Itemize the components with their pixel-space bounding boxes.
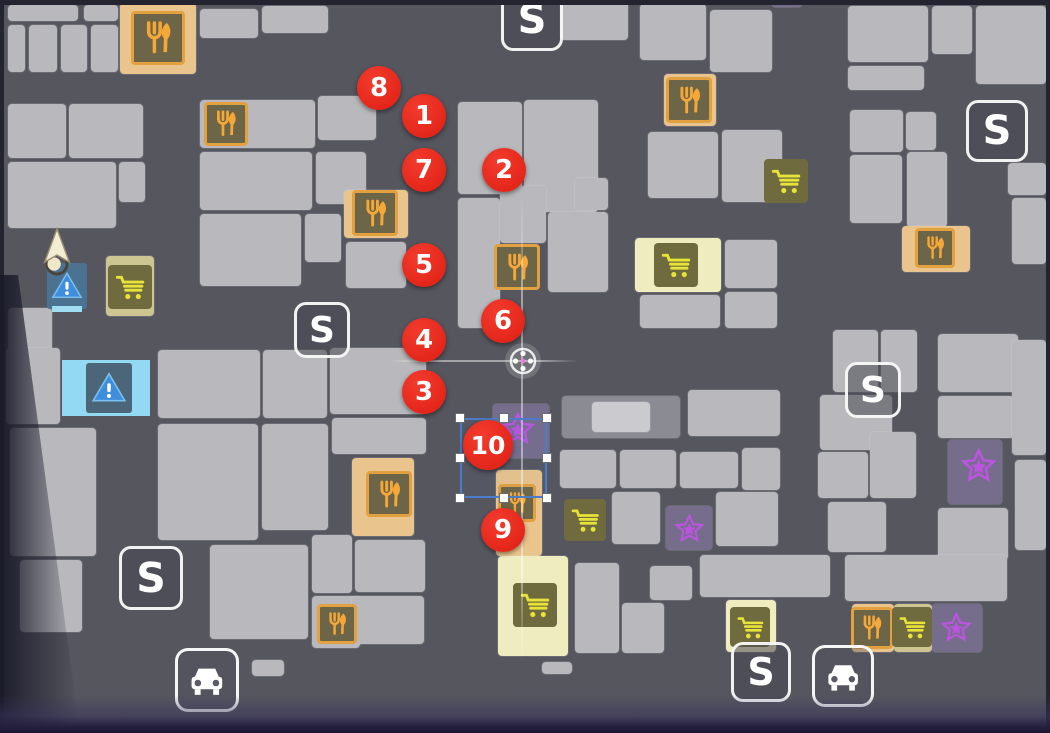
marker-number: 7 bbox=[415, 155, 433, 185]
map-marker-5[interactable]: 5 bbox=[402, 243, 446, 287]
building bbox=[716, 492, 778, 546]
building bbox=[312, 535, 352, 593]
shop-cart-icon bbox=[892, 607, 932, 647]
save-point-icon: S bbox=[294, 302, 350, 358]
player-position-icon bbox=[38, 226, 76, 278]
map-marker-1[interactable]: 1 bbox=[402, 94, 446, 138]
building bbox=[938, 396, 1014, 438]
building bbox=[938, 334, 1018, 392]
marker-number: 4 bbox=[415, 325, 433, 355]
restaurant-icon bbox=[204, 102, 248, 146]
save-point-icon: S bbox=[966, 100, 1028, 162]
building bbox=[640, 295, 720, 328]
building bbox=[119, 162, 145, 202]
marker-number: 5 bbox=[415, 250, 433, 280]
map-marker-8[interactable]: 8 bbox=[357, 66, 401, 110]
save-point-label: S bbox=[983, 108, 1012, 154]
restaurant-icon bbox=[494, 244, 540, 290]
building bbox=[69, 104, 143, 158]
shop-cart-icon bbox=[564, 499, 606, 541]
building bbox=[818, 452, 868, 498]
building bbox=[548, 212, 608, 292]
building bbox=[620, 450, 676, 488]
building bbox=[1012, 340, 1046, 455]
building bbox=[575, 563, 619, 653]
selection-handle-s[interactable] bbox=[499, 493, 509, 503]
building bbox=[742, 448, 780, 490]
building bbox=[850, 110, 903, 152]
building bbox=[575, 178, 608, 210]
building bbox=[262, 424, 328, 530]
building bbox=[907, 152, 947, 227]
building bbox=[938, 508, 1008, 560]
building bbox=[346, 242, 406, 288]
building bbox=[200, 152, 312, 210]
selection-handle-sw[interactable] bbox=[455, 493, 465, 503]
building bbox=[8, 104, 66, 158]
city-map[interactable]: SSSSSS 12345678910 bbox=[0, 0, 1050, 733]
building bbox=[355, 540, 425, 592]
marker-number: 9 bbox=[494, 515, 512, 545]
selection-handle-se[interactable] bbox=[542, 493, 552, 503]
building bbox=[1012, 198, 1046, 264]
restaurant-icon bbox=[131, 11, 185, 65]
warning-icon-large bbox=[62, 360, 150, 416]
map-marker-9[interactable]: 9 bbox=[481, 508, 525, 552]
save-point-icon: S bbox=[845, 362, 901, 418]
building bbox=[848, 66, 924, 90]
warning-inner-square bbox=[86, 363, 132, 413]
building bbox=[252, 660, 284, 676]
save-point-icon: S bbox=[731, 642, 791, 702]
selection-handle-e[interactable] bbox=[542, 453, 552, 463]
target-reticle-icon bbox=[501, 339, 545, 383]
shop-cart-icon bbox=[730, 607, 770, 647]
restaurant-icon bbox=[366, 471, 412, 517]
restaurant-icon bbox=[352, 190, 398, 236]
building bbox=[61, 25, 87, 72]
building bbox=[612, 492, 660, 544]
building bbox=[700, 555, 830, 597]
building bbox=[850, 155, 902, 223]
building bbox=[640, 4, 706, 60]
selection-handle-nw[interactable] bbox=[455, 413, 465, 423]
map-marker-2[interactable]: 2 bbox=[482, 148, 526, 192]
building bbox=[10, 428, 96, 556]
marker-number: 3 bbox=[415, 377, 433, 407]
building bbox=[20, 560, 82, 632]
building bbox=[352, 596, 424, 644]
warning-underline bbox=[52, 306, 82, 312]
building bbox=[263, 350, 327, 418]
star-icon bbox=[955, 443, 1003, 491]
building bbox=[200, 9, 258, 38]
marker-number: 8 bbox=[370, 73, 388, 103]
shop-cart-icon bbox=[764, 159, 808, 203]
save-point-label: S bbox=[136, 554, 166, 602]
building bbox=[500, 186, 546, 243]
map-marker-4[interactable]: 4 bbox=[402, 318, 446, 362]
building bbox=[6, 348, 60, 424]
building bbox=[648, 132, 718, 198]
building bbox=[158, 350, 260, 418]
marker-number: 2 bbox=[495, 155, 513, 185]
building bbox=[560, 450, 616, 488]
save-point-icon: S bbox=[501, 0, 563, 51]
map-marker-6[interactable]: 6 bbox=[481, 299, 525, 343]
building bbox=[725, 292, 777, 328]
building bbox=[91, 25, 118, 72]
building bbox=[650, 566, 692, 600]
selection-handle-ne[interactable] bbox=[542, 413, 552, 423]
map-marker-3[interactable]: 3 bbox=[402, 370, 446, 414]
shop-cart-icon bbox=[108, 265, 152, 309]
building bbox=[8, 5, 78, 21]
save-point-label: S bbox=[860, 370, 886, 411]
marker-number: 6 bbox=[494, 306, 512, 336]
restaurant-icon bbox=[317, 604, 357, 644]
map-bottom-band bbox=[0, 695, 1050, 733]
building bbox=[845, 555, 1007, 601]
marker-number: 10 bbox=[471, 431, 506, 460]
building bbox=[828, 502, 886, 552]
building bbox=[906, 112, 936, 150]
building bbox=[932, 6, 972, 54]
save-point-label: S bbox=[747, 650, 774, 694]
building bbox=[976, 6, 1046, 84]
restaurant-icon bbox=[915, 228, 955, 268]
map-border-right bbox=[1046, 0, 1050, 733]
building bbox=[725, 240, 777, 288]
building bbox=[622, 603, 664, 653]
star-icon bbox=[669, 509, 709, 549]
taxi-icon bbox=[812, 645, 874, 707]
building bbox=[8, 25, 25, 72]
building bbox=[680, 452, 738, 488]
building bbox=[332, 418, 426, 454]
selection-handle-n[interactable] bbox=[499, 413, 509, 423]
shop-cart-icon bbox=[513, 583, 557, 627]
selection-handle-w[interactable] bbox=[455, 453, 465, 463]
building bbox=[210, 545, 308, 639]
save-point-label: S bbox=[518, 0, 547, 43]
save-point-label: S bbox=[309, 310, 335, 351]
taxi-icon bbox=[175, 648, 239, 712]
restaurant-icon bbox=[851, 607, 893, 649]
shop-cart-icon bbox=[654, 243, 698, 287]
building bbox=[200, 214, 301, 286]
save-point-icon: S bbox=[119, 546, 183, 610]
building bbox=[158, 424, 258, 540]
building bbox=[688, 390, 780, 436]
star-icon bbox=[935, 607, 977, 649]
building bbox=[710, 10, 772, 72]
building bbox=[848, 6, 928, 62]
building bbox=[592, 402, 650, 432]
restaurant-icon bbox=[666, 77, 712, 123]
building bbox=[29, 25, 57, 72]
building bbox=[262, 6, 328, 33]
building bbox=[542, 662, 572, 674]
map-marker-7[interactable]: 7 bbox=[402, 148, 446, 192]
building bbox=[8, 162, 116, 228]
building bbox=[1015, 460, 1046, 550]
building bbox=[772, 0, 802, 7]
map-marker-10[interactable]: 10 bbox=[463, 420, 513, 470]
map-border-left bbox=[0, 0, 4, 733]
building bbox=[870, 432, 916, 498]
building bbox=[560, 0, 628, 40]
building bbox=[305, 214, 341, 262]
building bbox=[1008, 163, 1046, 195]
building bbox=[84, 5, 118, 21]
marker-number: 1 bbox=[415, 101, 433, 131]
